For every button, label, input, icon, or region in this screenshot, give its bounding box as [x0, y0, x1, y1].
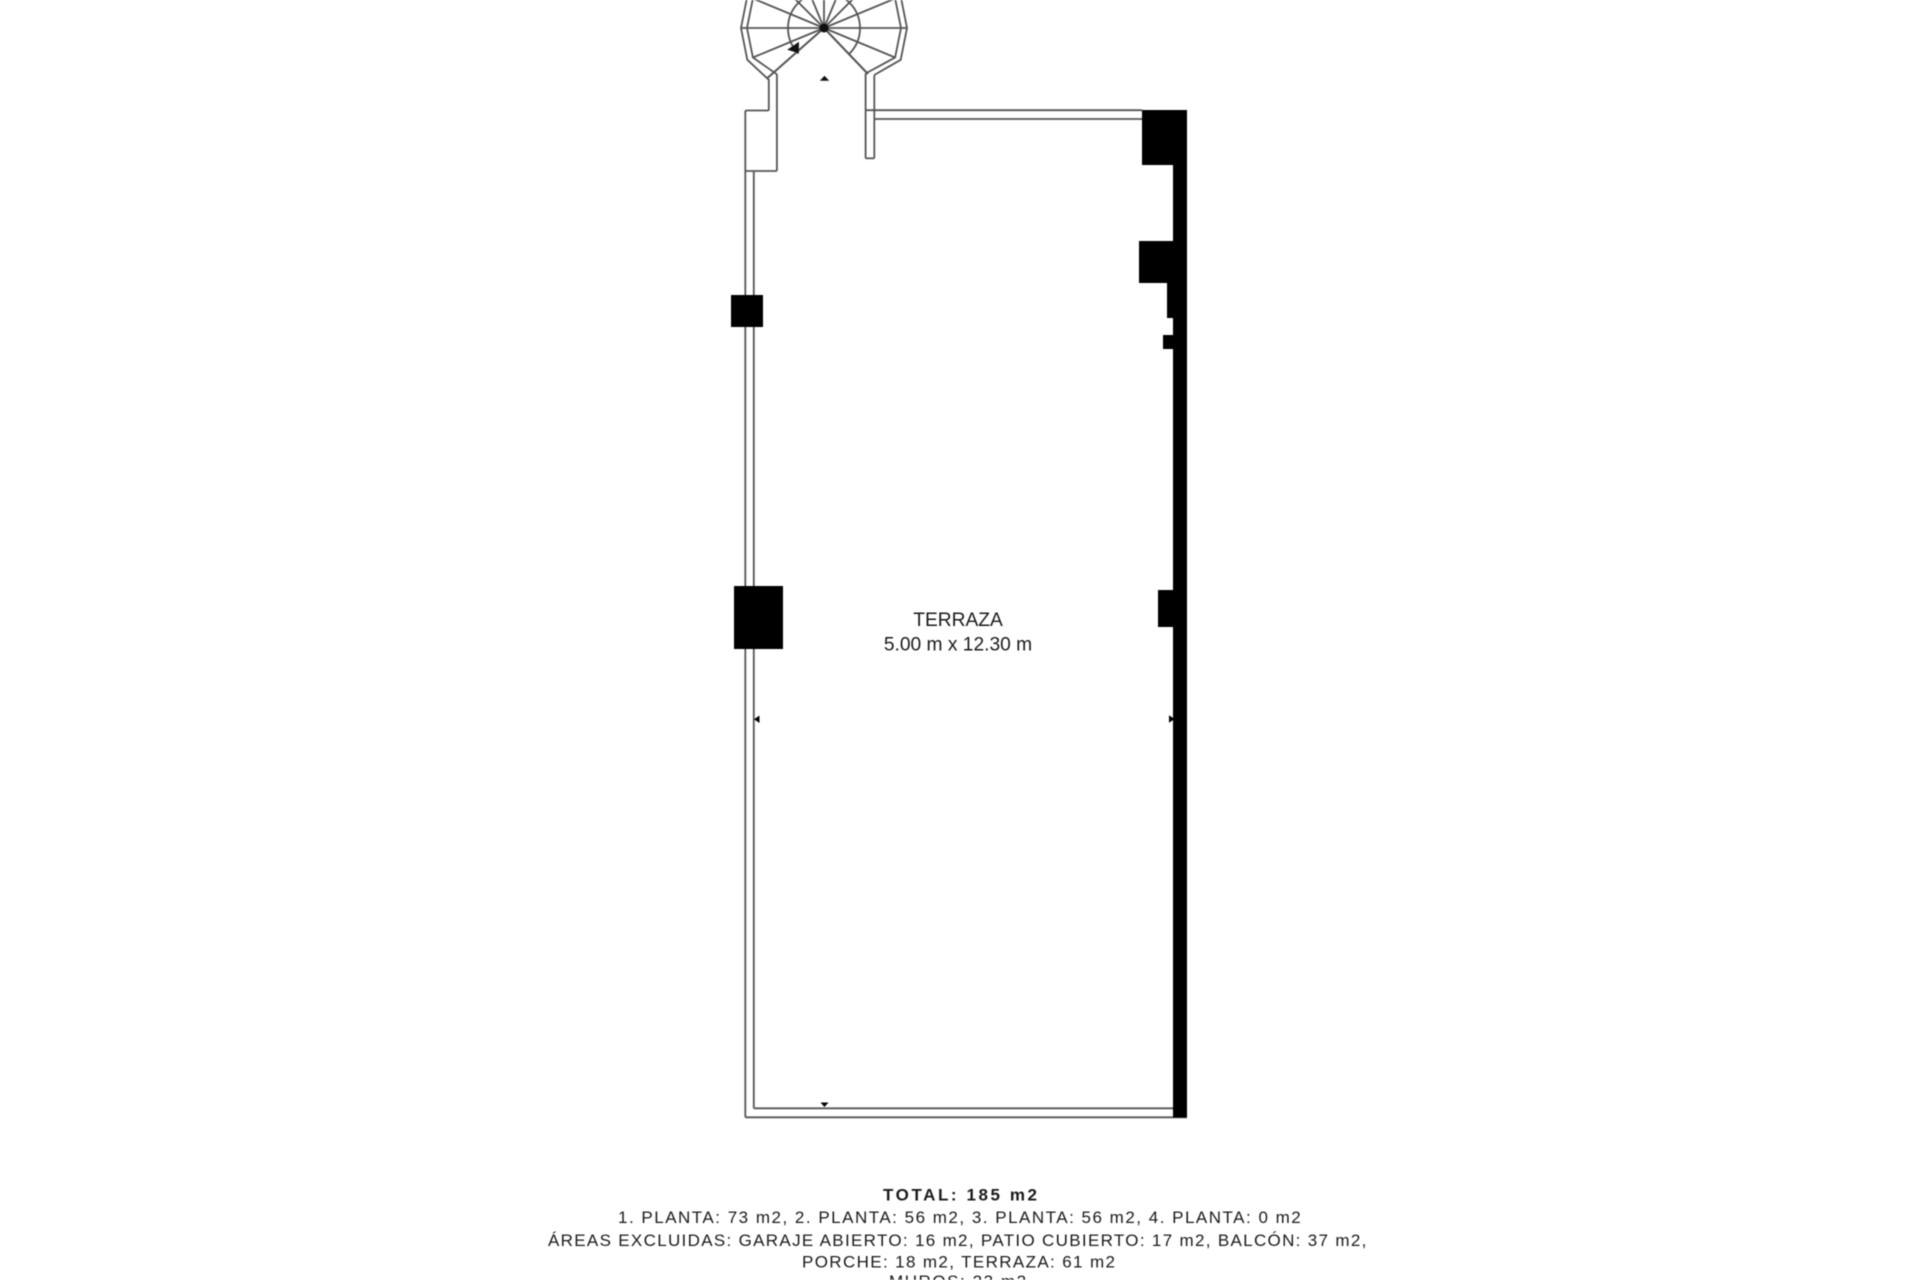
svg-text:TOTAL: 185 m2: TOTAL: 185 m2 [883, 1186, 1040, 1205]
svg-text:MUROS: 23 m2: MUROS: 23 m2 [889, 1272, 1028, 1280]
svg-text:TERRAZA: TERRAZA [913, 610, 1003, 631]
svg-text:PORCHE: 18 m2, TERRAZA: 61 m2: PORCHE: 18 m2, TERRAZA: 61 m2 [802, 1253, 1116, 1272]
svg-text:ÁREAS EXCLUIDAS: GARAJE ABIERT: ÁREAS EXCLUIDAS: GARAJE ABIERTO: 16 m2, … [548, 1231, 1368, 1250]
svg-text:1. PLANTA: 73 m2, 2. PLANTA: 5: 1. PLANTA: 73 m2, 2. PLANTA: 56 m2, 3. P… [618, 1208, 1302, 1227]
svg-text:5.00 m x 12.30 m: 5.00 m x 12.30 m [884, 635, 1032, 656]
